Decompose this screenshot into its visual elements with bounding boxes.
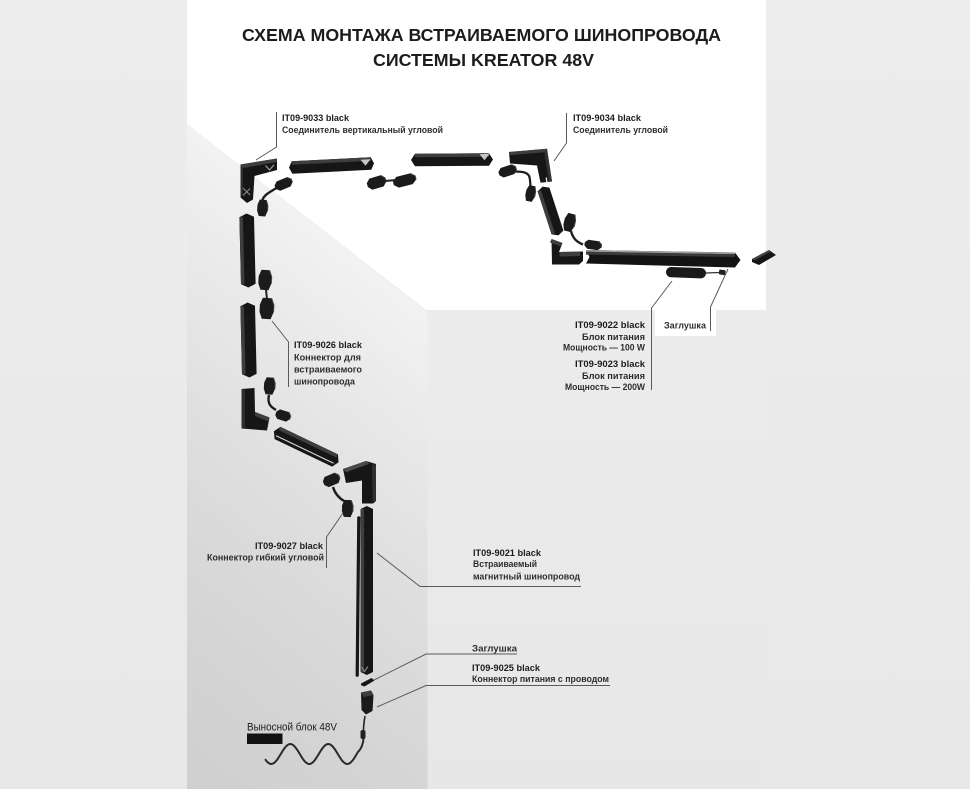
svg-text:Встраиваемый: Встраиваемый (473, 559, 537, 570)
svg-text:СИСТЕМЫ KREATOR 48V: СИСТЕМЫ KREATOR 48V (373, 50, 594, 70)
svg-text:Коннектор для: Коннектор для (294, 353, 361, 364)
svg-text:Мощность — 100 W: Мощность — 100 W (563, 343, 645, 354)
svg-text:Соединитель вертикальный углов: Соединитель вертикальный угловой (282, 125, 443, 136)
svg-text:Соединитель угловой: Соединитель угловой (573, 125, 668, 136)
svg-text:IT09-9023 black: IT09-9023 black (575, 359, 646, 370)
svg-text:магнитный шинопровод: магнитный шинопровод (473, 572, 580, 583)
svg-text:IT09-9025 black: IT09-9025 black (472, 663, 541, 674)
svg-text:Мощность — 200W: Мощность — 200W (565, 382, 645, 393)
svg-text:IT09-9026 black: IT09-9026 black (294, 340, 363, 351)
svg-text:IT09-9034 black: IT09-9034 black (573, 113, 642, 124)
svg-text:шинопровода: шинопровода (294, 377, 356, 388)
svg-text:Заглушка: Заглушка (472, 644, 518, 655)
svg-text:IT09-9033 black: IT09-9033 black (282, 113, 350, 124)
svg-text:Выносной блок 48V: Выносной блок 48V (247, 722, 338, 734)
svg-text:Коннектор питания с проводом: Коннектор питания с проводом (472, 674, 609, 685)
svg-text:Коннектор гибкий угловой: Коннектор гибкий угловой (207, 553, 324, 564)
svg-text:IT09-9027 black: IT09-9027 black (255, 541, 324, 552)
svg-text:Блок питания: Блок питания (582, 332, 645, 343)
svg-text:IT09-9021 black: IT09-9021 black (473, 548, 542, 559)
svg-text:IT09-9022 black: IT09-9022 black (575, 320, 646, 331)
svg-text:Блок питания: Блок питания (582, 371, 645, 382)
svg-text:Заглушка: Заглушка (664, 321, 707, 332)
svg-text:встраиваемого: встраиваемого (294, 365, 362, 376)
svg-text:СХЕМА МОНТАЖА ВСТРАИВАЕМОГО ШИ: СХЕМА МОНТАЖА ВСТРАИВАЕМОГО ШИНОПРОВОДА (242, 25, 721, 45)
